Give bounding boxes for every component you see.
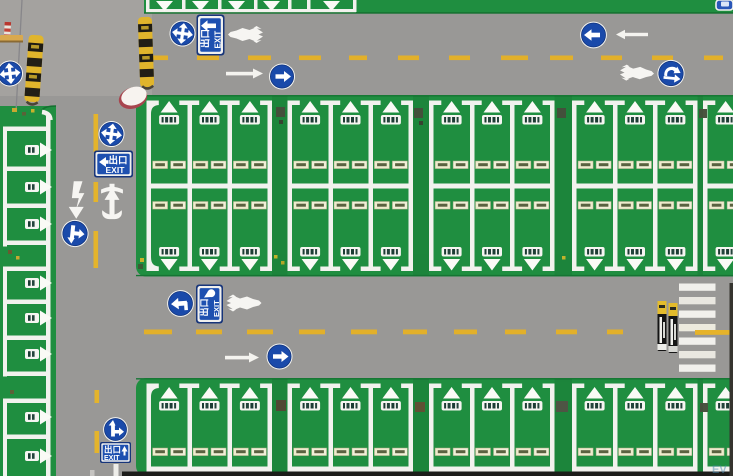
svg-text:出口: 出口 — [199, 29, 211, 48]
svg-text:EXIT: EXIT — [104, 455, 120, 462]
svg-text:EXIT: EXIT — [212, 300, 221, 317]
svg-text:EXIT: EXIT — [106, 165, 126, 175]
svg-text:EXIT: EXIT — [213, 31, 222, 49]
svg-text:出口: 出口 — [104, 445, 121, 455]
svg-text:出口: 出口 — [199, 298, 210, 316]
svg-text:EV: EV — [712, 464, 727, 476]
